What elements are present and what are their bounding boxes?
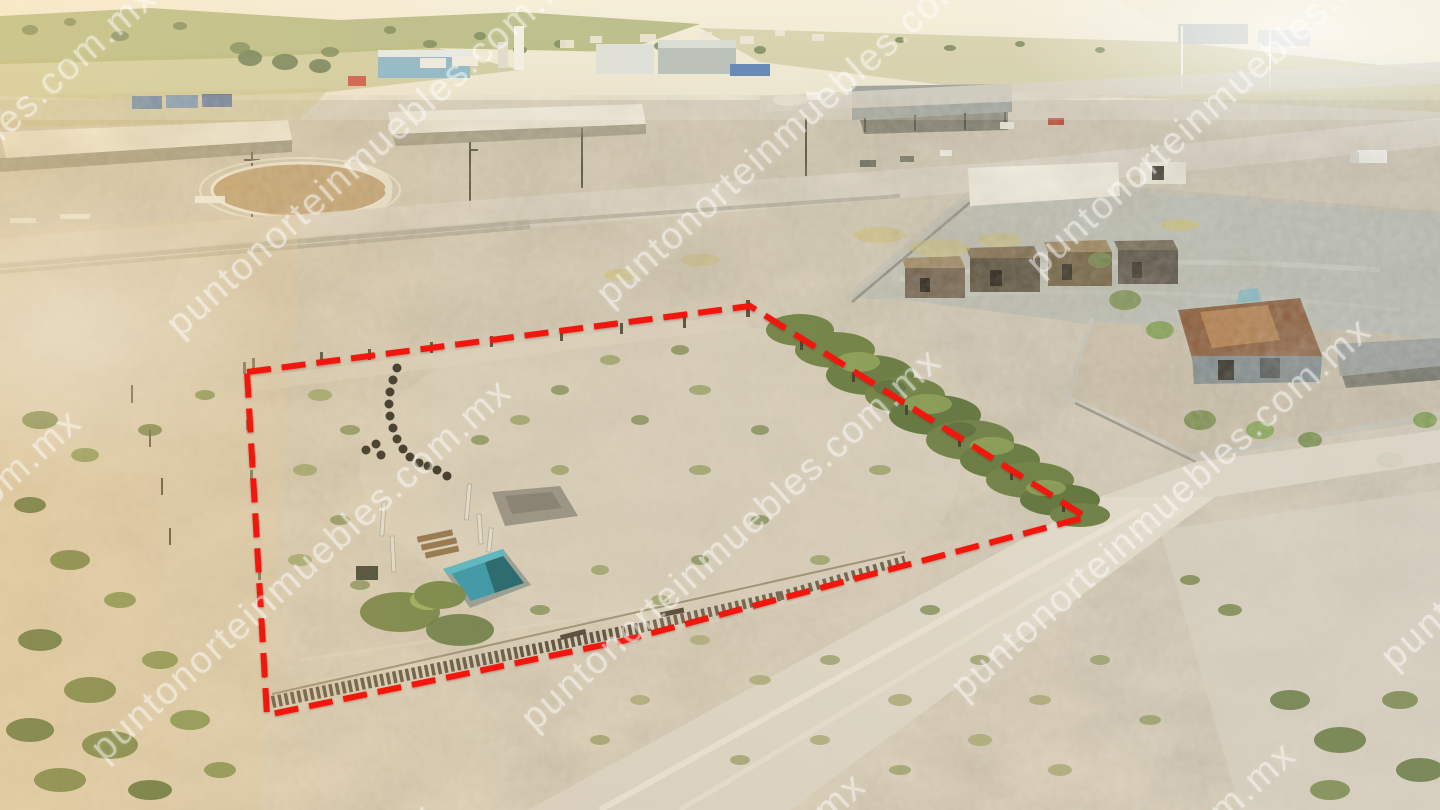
aerial-photo: puntonorteinmuebles.com.mxpuntonorteinmu… xyxy=(0,0,1440,810)
aerial-scene xyxy=(0,0,1440,810)
light-overlays xyxy=(0,0,1440,810)
